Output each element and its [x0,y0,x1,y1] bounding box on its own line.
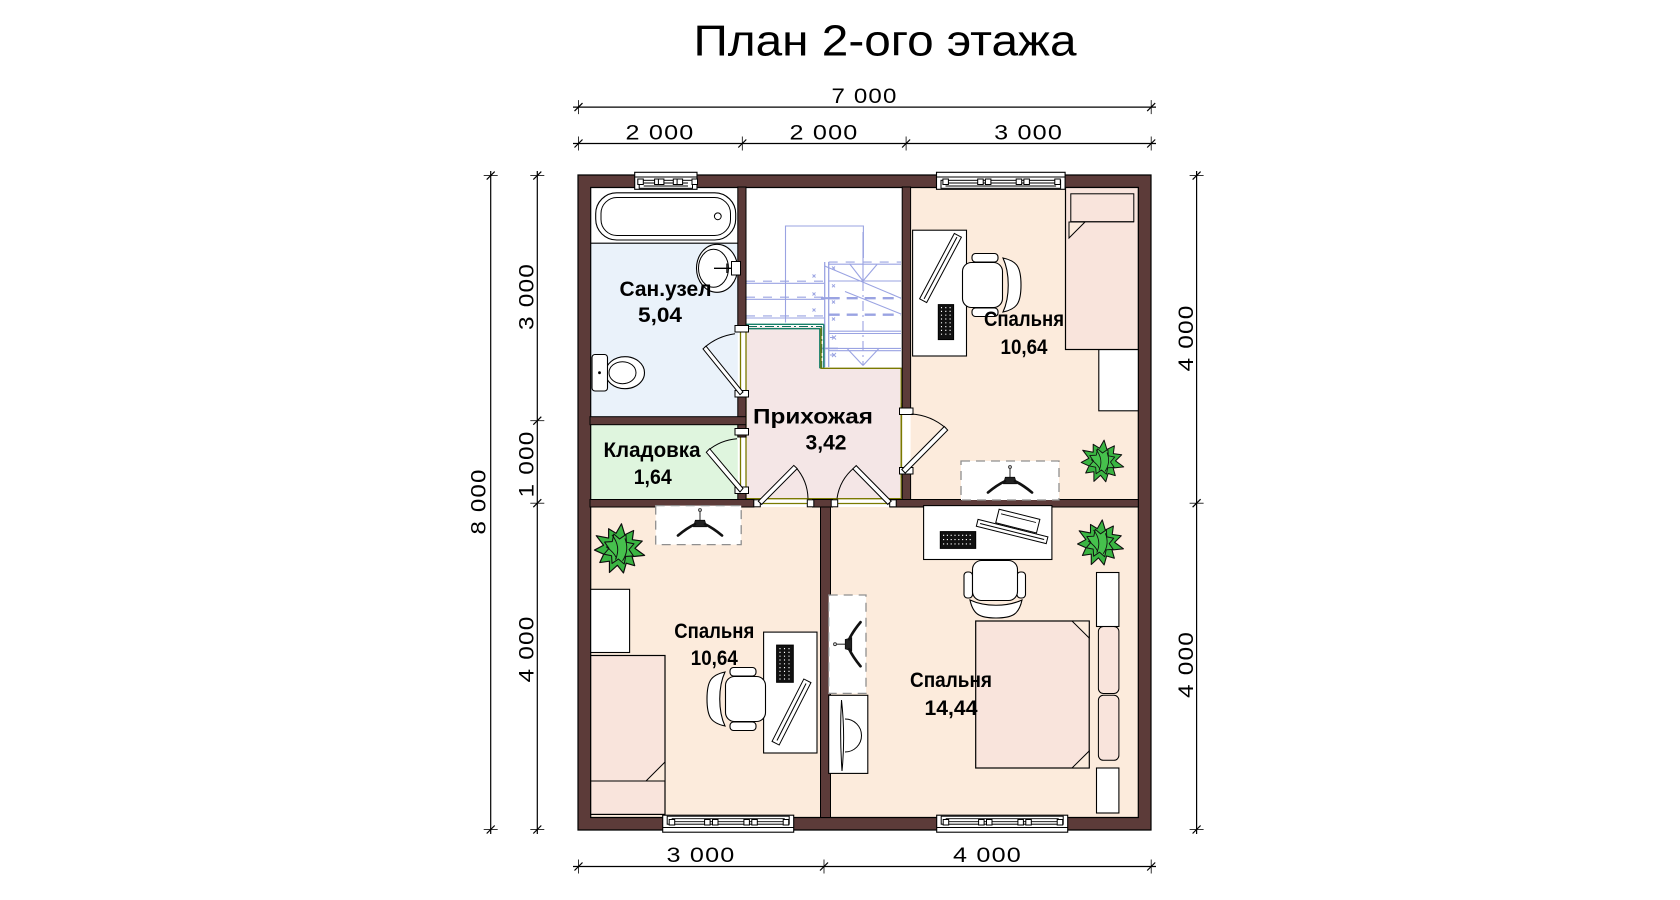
svg-text:2 000: 2 000 [626,122,695,145]
svg-text:Сан.узел: Сан.узел [620,278,712,301]
svg-text:3 000: 3 000 [667,844,736,867]
svg-text:3,42: 3,42 [806,432,847,455]
svg-text:Кладовка: Кладовка [604,439,701,462]
svg-text:8 000: 8 000 [468,469,491,535]
svg-text:Спальня: Спальня [984,308,1064,331]
svg-text:2 000: 2 000 [790,122,859,145]
svg-text:Прихожая: Прихожая [753,406,873,429]
svg-text:3 000: 3 000 [516,263,539,330]
svg-text:4 000: 4 000 [1175,305,1198,372]
svg-text:4 000: 4 000 [516,616,539,683]
svg-text:План 2-ого этажа: План 2-ого этажа [694,17,1078,66]
svg-text:Спальня: Спальня [674,620,754,643]
svg-text:5,04: 5,04 [638,304,682,327]
svg-text:10,64: 10,64 [691,647,738,670]
svg-text:4 000: 4 000 [953,844,1022,867]
svg-text:1,64: 1,64 [634,466,672,489]
svg-text:Спальня: Спальня [910,669,992,692]
svg-text:3 000: 3 000 [994,122,1063,145]
svg-text:4 000: 4 000 [1175,631,1198,698]
svg-text:10,64: 10,64 [1001,336,1048,359]
svg-text:1 000: 1 000 [516,431,539,498]
svg-text:14,44: 14,44 [925,697,978,720]
svg-text:7 000: 7 000 [832,85,898,108]
